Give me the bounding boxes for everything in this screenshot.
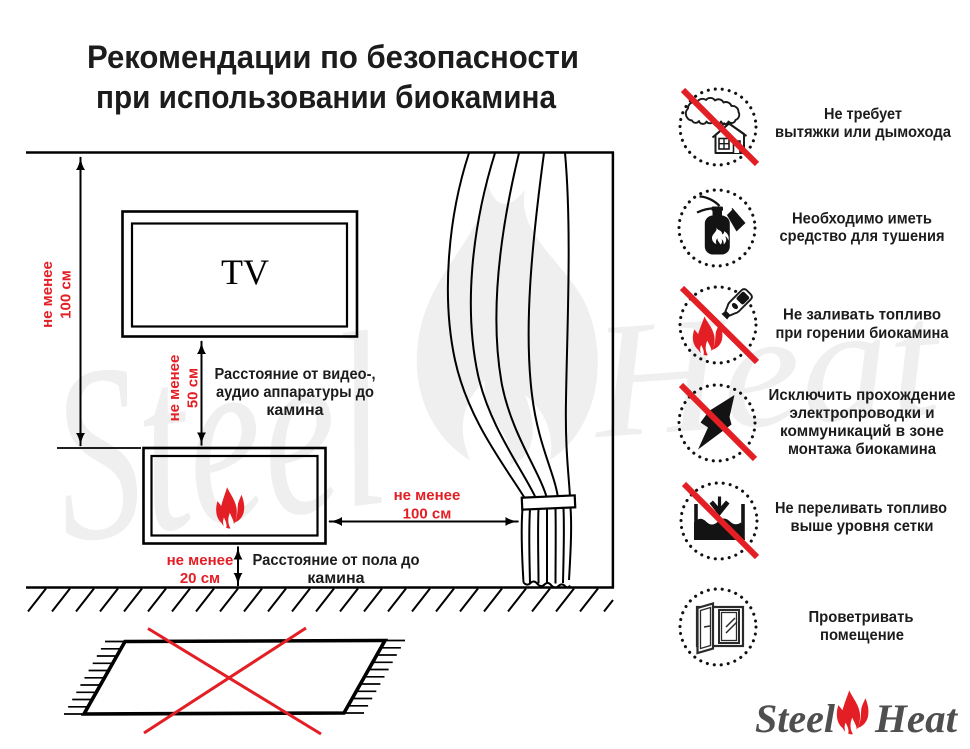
svg-text:Не требует: Не требует bbox=[824, 106, 902, 123]
svg-text:100 см: 100 см bbox=[403, 506, 452, 523]
svg-text:Исключить прохождение: Исключить прохождение bbox=[769, 387, 956, 404]
svg-text:Steel: Steel bbox=[38, 281, 399, 596]
svg-text:Не заливать топливо: Не заливать топливо bbox=[783, 307, 941, 324]
svg-text:Расстояние от видео-,: Расстояние от видео-, bbox=[215, 366, 376, 383]
svg-text:камина: камина bbox=[307, 570, 364, 587]
svg-text:20 см: 20 см bbox=[180, 570, 220, 587]
svg-text:при использовании биокамина: при использовании биокамина bbox=[96, 79, 556, 115]
svg-text:вытяжки или дымохода: вытяжки или дымохода bbox=[775, 124, 951, 141]
svg-text:Рекомендации по безопасности: Рекомендации по безопасности bbox=[87, 39, 579, 75]
svg-text:камина: камина bbox=[266, 402, 323, 419]
svg-text:монтажа биокамина: монтажа биокамина bbox=[788, 441, 936, 458]
svg-text:не менее: не менее bbox=[394, 487, 461, 504]
svg-text:электропроводки и: электропроводки и bbox=[790, 405, 935, 422]
svg-text:100 см: 100 см bbox=[58, 270, 75, 319]
svg-text:не менее: не менее bbox=[166, 355, 183, 422]
svg-text:средство для тушения: средство для тушения bbox=[780, 228, 945, 245]
svg-text:Проветривать: Проветривать bbox=[809, 609, 914, 626]
svg-text:Расстояние от пола до: Расстояние от пола до bbox=[253, 552, 420, 569]
svg-text:не менее: не менее bbox=[167, 552, 234, 569]
svg-text:Необходимо иметь: Необходимо иметь bbox=[792, 211, 932, 228]
svg-text:помещение: помещение bbox=[820, 627, 904, 644]
svg-text:аудио аппаратуры до: аудио аппаратуры до bbox=[216, 384, 374, 401]
svg-text:TV: TV bbox=[221, 252, 269, 292]
svg-text:50 см: 50 см bbox=[185, 368, 202, 408]
svg-text:Не переливать топливо: Не переливать топливо bbox=[775, 500, 947, 517]
svg-text:коммуникаций в зоне: коммуникаций в зоне bbox=[780, 423, 944, 440]
svg-text:при горении биокамина: при горении биокамина bbox=[776, 325, 949, 342]
svg-text:Heat: Heat bbox=[874, 696, 959, 741]
svg-text:не менее: не менее bbox=[39, 261, 56, 328]
svg-text:выше уровня сетки: выше уровня сетки bbox=[791, 518, 934, 535]
svg-text:Steel: Steel bbox=[755, 696, 836, 741]
